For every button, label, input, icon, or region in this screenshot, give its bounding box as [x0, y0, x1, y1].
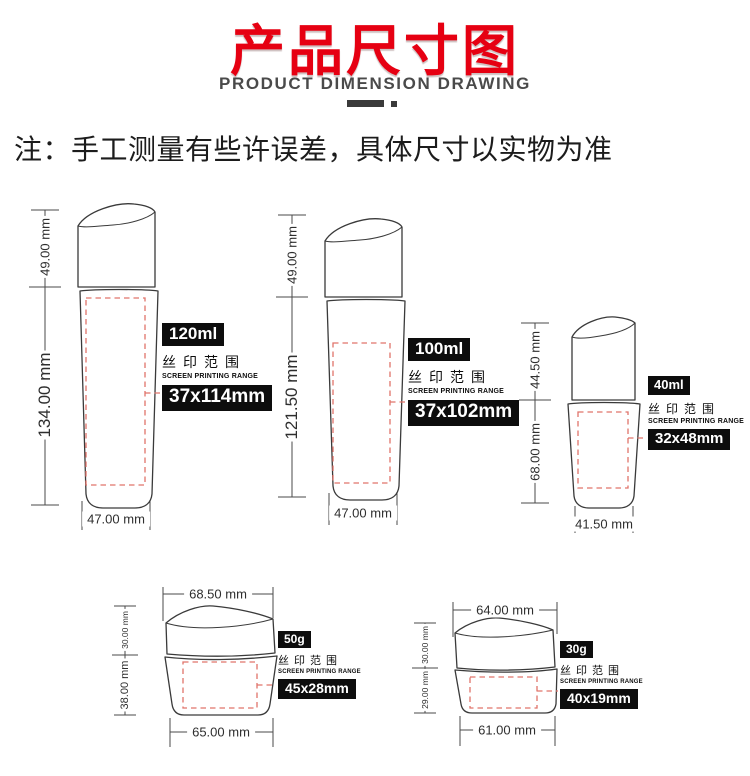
title-underline-decoration [347, 100, 403, 107]
dim-label-width: 41.50 mm [570, 517, 638, 532]
dim-label-cap-height: 44.50 mm [525, 329, 546, 391]
print-area-badge: 37x114mm [162, 385, 272, 411]
dim-label-bottom-width: 61.00 mm [473, 723, 541, 738]
volume-badge: 30g [560, 641, 593, 658]
dim-label-body-height: 29.00 mm [417, 669, 433, 711]
label-block-100ml: 100ml 丝印范围 SCREEN PRINTING RANGE 37x102m… [408, 338, 519, 426]
product-group-40ml: 44.50 mm 68.00 mm 41.50 mm 40ml 丝印范围 SCR… [515, 300, 750, 540]
decoration-bar [347, 100, 384, 107]
silk-print-label: 丝印范围 [648, 400, 744, 417]
volume-badge: 100ml [408, 338, 470, 361]
measurement-note: 注：手工测量有些许误差，具体尺寸以实物为准 [14, 128, 750, 168]
silk-print-sublabel: SCREEN PRINTING RANGE [648, 418, 744, 425]
page-subtitle: PRODUCT DIMENSION DRAWING [0, 74, 750, 94]
dim-label-cap-height: 30.00 mm [417, 624, 433, 666]
product-group-30g: 64.00 mm 30.00 mm 29.00 mm 61.00 mm 30g … [400, 585, 660, 776]
silk-print-sublabel: SCREEN PRINTING RANGE [408, 388, 519, 395]
bottle-outline [325, 219, 405, 500]
label-block-120ml: 120ml 丝印范围 SCREEN PRINTING RANGE 37x114m… [162, 323, 272, 411]
dim-label-top-width: 68.50 mm [184, 587, 252, 602]
dim-label-body-height: 38.00 mm [116, 659, 134, 712]
silk-print-sublabel: SCREEN PRINTING RANGE [162, 373, 272, 380]
dim-label-total-height: 121.50 mm [279, 352, 305, 441]
dim-label-bottom-width: 65.00 mm [187, 725, 255, 740]
product-group-120ml: 49.00 mm 134.00 mm 47.00 mm 120ml 丝印范围 S… [25, 195, 295, 540]
silk-print-label: 丝印范围 [560, 662, 643, 678]
dim-label-cap-height: 49.00 mm [282, 224, 303, 286]
product-group-50g: 68.50 mm 30.00 mm 38.00 mm 65.00 mm 50g … [110, 585, 370, 776]
dimension-drawing-page: 产品尺寸图 PRODUCT DIMENSION DRAWING 注：手工测量有些… [0, 0, 750, 776]
volume-badge: 50g [278, 631, 311, 648]
print-area-badge: 37x102mm [408, 400, 519, 426]
dim-label-cap-height: 30.00 mm [117, 609, 133, 651]
silk-print-label: 丝印范围 [162, 352, 272, 372]
print-area-dashed-box [333, 343, 390, 483]
dim-label-top-width: 64.00 mm [471, 603, 539, 618]
label-block-40ml: 40ml 丝印范围 SCREEN PRINTING RANGE 32x48mm [648, 376, 744, 450]
print-area-dashed-box [86, 298, 145, 485]
product-group-100ml: 49.00 mm 121.50 mm 47.00 mm 100ml 丝印范围 S… [272, 195, 507, 540]
print-area-badge: 32x48mm [648, 429, 730, 450]
dim-label-total-height: 134.00 mm [32, 350, 58, 439]
jar-outline [165, 606, 277, 715]
decoration-square [391, 101, 397, 107]
dim-label-body-height: 68.00 mm [525, 421, 546, 483]
silk-print-label: 丝印范围 [408, 367, 519, 387]
volume-badge: 40ml [648, 376, 690, 395]
volume-badge: 120ml [162, 323, 224, 346]
bottle-outline [78, 204, 158, 508]
dim-label-cap-height: 49.00 mm [35, 216, 56, 278]
label-block-30g: 30g 丝印范围 SCREEN PRINTING RANGE 40x19mm [560, 640, 643, 709]
print-area-dashed-box [470, 677, 537, 708]
print-area-dashed-box [183, 662, 257, 708]
print-area-badge: 40x19mm [560, 689, 638, 709]
dim-label-width: 47.00 mm [82, 512, 150, 527]
dim-label-width: 47.00 mm [329, 506, 397, 521]
silk-print-label: 丝印范围 [278, 652, 361, 668]
label-block-50g: 50g 丝印范围 SCREEN PRINTING RANGE 45x28mm [278, 630, 361, 699]
print-area-badge: 45x28mm [278, 679, 356, 699]
print-area-dashed-box [578, 412, 628, 488]
